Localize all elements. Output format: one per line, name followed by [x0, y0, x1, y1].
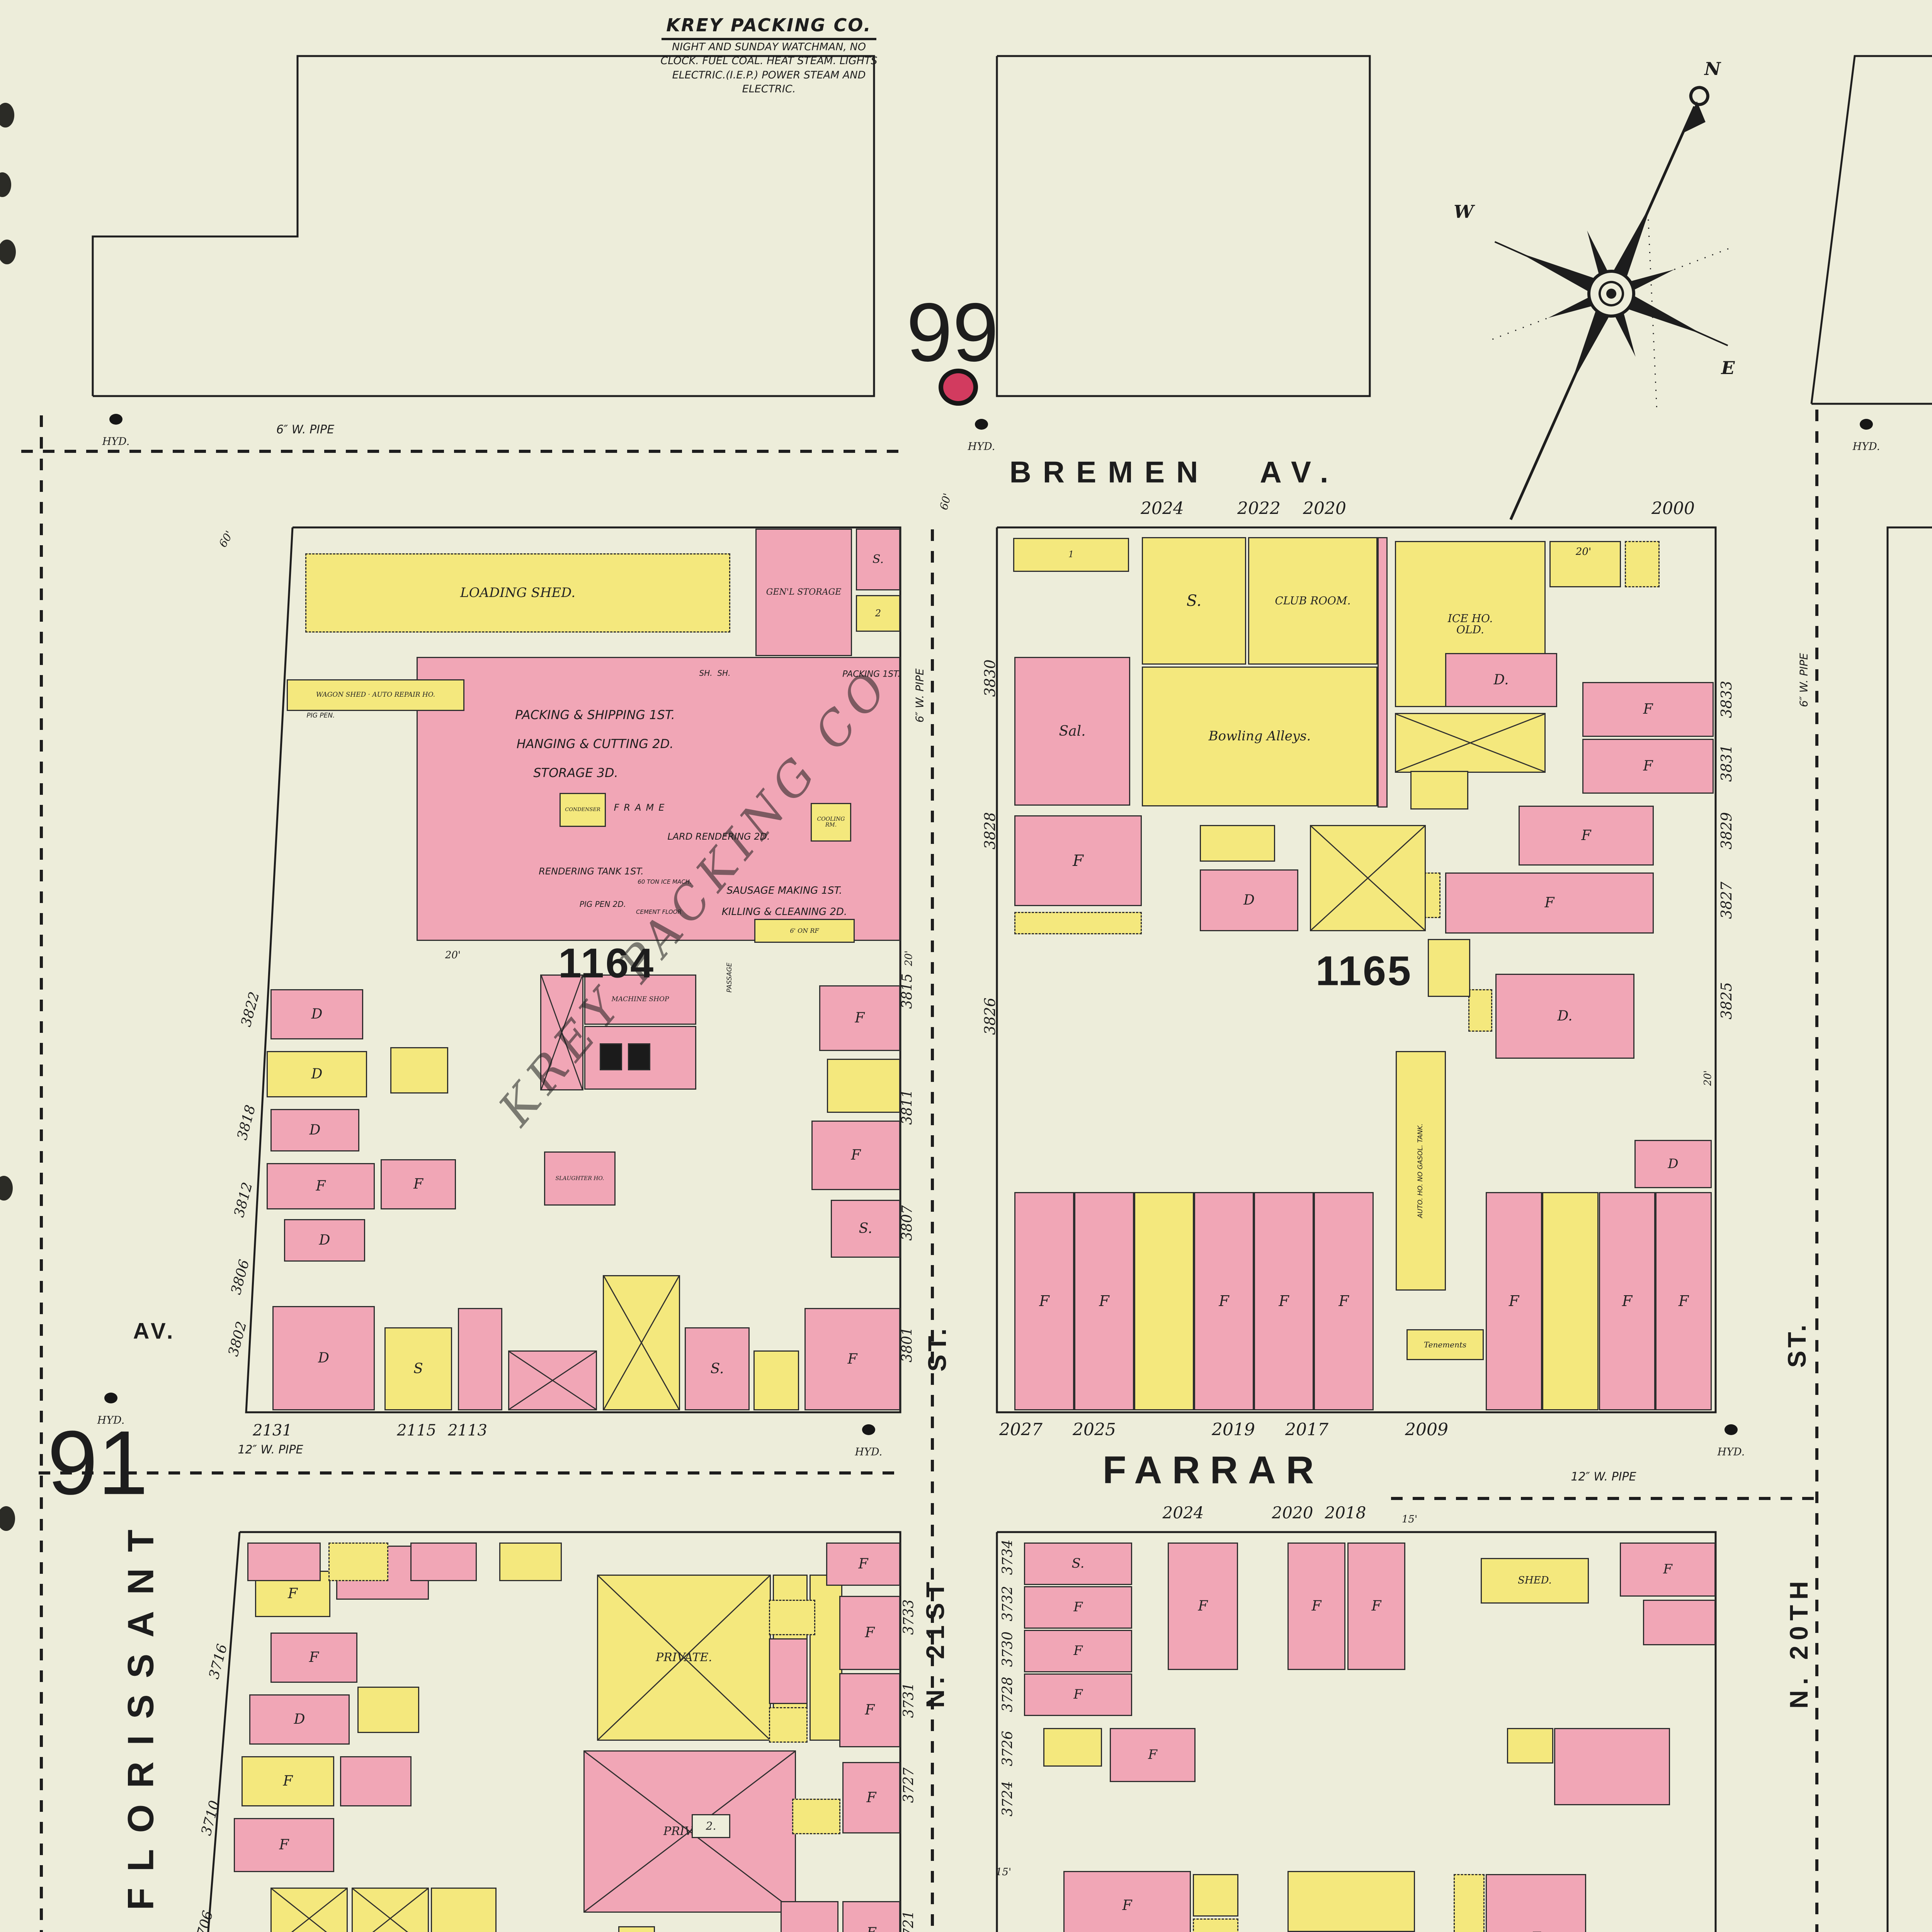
block-outline: [1811, 56, 1932, 404]
hydrant-label: HYD.: [1853, 441, 1880, 453]
building-label: F: [309, 1650, 319, 1665]
hydrant-icon: [862, 1424, 875, 1435]
map-label: 3811: [900, 1089, 915, 1125]
map-label: 20': [445, 949, 461, 961]
map-label: 3726: [1000, 1731, 1016, 1766]
adjacent-sheet-91: 91: [47, 1410, 148, 1515]
building-label: F: [848, 1352, 857, 1367]
building: SHED.: [1481, 1558, 1589, 1604]
building: F: [1582, 739, 1714, 794]
building: [1625, 541, 1660, 587]
compass-east-label: E: [1721, 357, 1735, 378]
building-label: 6' ON RF: [790, 928, 819, 934]
title-block: Krey Packing Co. NIGHT AND SUNDAY WATCHM…: [634, 15, 904, 97]
map-label: 20': [1702, 1070, 1714, 1086]
building-label: F: [865, 1626, 875, 1640]
building: [1310, 825, 1426, 931]
building: [628, 1043, 650, 1070]
building: GEN'L STORAGE: [755, 529, 852, 656]
map-label: 3827: [1718, 882, 1735, 919]
building: F: [1194, 1192, 1254, 1410]
map-label: 3721: [901, 1910, 917, 1932]
hydrant-icon: [104, 1393, 117, 1403]
building-label: F: [1338, 1294, 1349, 1309]
building: D: [1634, 1140, 1712, 1188]
building-label: F: [867, 1791, 876, 1805]
map-label: SH. SH.: [699, 668, 731, 678]
building: F: [819, 985, 900, 1051]
building: [1395, 713, 1546, 773]
building-label: F: [1148, 1748, 1157, 1762]
map-label: 3730: [1000, 1631, 1016, 1667]
map-label: KILLING & CLEANING 2D.: [722, 906, 847, 918]
building: F: [839, 1673, 900, 1747]
building: D: [270, 989, 363, 1039]
building: [1193, 1918, 1238, 1932]
building-label: GEN'L STORAGE: [766, 588, 841, 597]
building-label: D.: [1557, 1009, 1572, 1024]
building: F: [241, 1756, 334, 1806]
building-label: D: [318, 1351, 329, 1366]
map-label: PACKING & SHIPPING 1ST.: [515, 707, 675, 722]
title-note-1: NIGHT AND SUNDAY WATCHMAN, NO: [634, 40, 904, 54]
building: 6' ON RF: [754, 919, 855, 943]
building: F: [1599, 1192, 1655, 1410]
map-label: 2020: [1272, 1503, 1313, 1522]
building: F: [842, 1762, 900, 1833]
map-label: 3727: [901, 1767, 917, 1803]
map-label: 2115: [397, 1422, 436, 1439]
building: [753, 1350, 799, 1410]
building: [769, 1600, 815, 1635]
building-label: S: [413, 1362, 423, 1376]
building: F: [1314, 1192, 1374, 1410]
map-label: 15': [996, 1866, 1011, 1878]
building: [792, 1799, 840, 1834]
hydrant-icon: [1860, 419, 1873, 430]
building-label: S.: [872, 553, 884, 566]
building: [769, 1638, 808, 1704]
building-label: D: [319, 1233, 330, 1248]
building-label: F: [1663, 1563, 1672, 1577]
building-label: D: [1243, 893, 1255, 908]
building: PRIVATE: [583, 1750, 796, 1913]
map-label: 2025: [1073, 1420, 1116, 1440]
street-label-farrar: FARRAR: [1103, 1448, 1324, 1493]
building-label: F: [855, 1011, 865, 1026]
building-label: SLAUGHTER HO.: [555, 1176, 604, 1182]
crossed-building-mark: [272, 1889, 347, 1932]
map-label: 3728: [1000, 1677, 1016, 1712]
building: F: [1655, 1192, 1712, 1410]
building: [1043, 1728, 1102, 1767]
map-label: 2018: [1325, 1503, 1366, 1522]
map-label: 20': [903, 951, 915, 966]
building: F: [1582, 682, 1714, 737]
map-label: 2009: [1405, 1420, 1448, 1440]
building-label: CLUB ROOM.: [1275, 595, 1350, 606]
building-label: F: [1582, 828, 1591, 843]
building-label: F: [1073, 1600, 1083, 1614]
building-label: F: [851, 1148, 861, 1163]
building-label: F: [1622, 1294, 1632, 1309]
map-label: 2020: [1303, 499, 1346, 519]
hydrant-icon: [109, 414, 122, 425]
building: F: [1347, 1543, 1405, 1670]
crossed-building-mark: [604, 1276, 679, 1409]
building-label: F: [279, 1838, 289, 1852]
hydrant-icon: [1725, 1424, 1738, 1435]
building: PRIVATE.: [597, 1575, 771, 1741]
company-name: Krey Packing Co.: [662, 15, 876, 40]
building: [247, 1543, 321, 1581]
building-label: F: [1198, 1599, 1208, 1614]
building: [1454, 1874, 1485, 1932]
building-label: ICE HO. OLD.: [1448, 613, 1493, 636]
building: [508, 1350, 597, 1410]
building: S.: [685, 1327, 750, 1410]
building: [357, 1687, 419, 1733]
building: F: [1254, 1192, 1314, 1410]
map-label: 12″ W. PIPE: [1571, 1470, 1636, 1484]
building: F: [1486, 1192, 1542, 1410]
building-label: F: [1372, 1599, 1381, 1614]
map-label: 3826: [981, 998, 998, 1035]
map-label: 3801: [900, 1327, 915, 1362]
building: S.: [856, 529, 900, 590]
building: 1: [1013, 538, 1129, 572]
building: [1378, 537, 1388, 808]
building: 2: [856, 595, 900, 632]
building: F: [1168, 1543, 1238, 1670]
building: [1134, 1192, 1194, 1410]
building: [270, 1888, 348, 1932]
building: [1410, 771, 1468, 810]
map-label: 3833: [1718, 681, 1735, 718]
building: [410, 1543, 477, 1581]
map-label: 3815: [900, 973, 915, 1009]
building: D: [272, 1306, 375, 1410]
building: [603, 1275, 680, 1410]
building: [1014, 912, 1142, 934]
block-number-1166: 1166: [1304, 1923, 1401, 1932]
map-label: 3731: [901, 1682, 917, 1718]
block-outline: [93, 56, 874, 396]
building: [499, 1543, 562, 1581]
building: [328, 1543, 388, 1581]
building: D.: [1495, 974, 1634, 1059]
building: F: [1074, 1192, 1134, 1410]
sanborn-map-sheet: LOADING SHED.GEN'L STORAGES.2CONDENSERCO…: [0, 0, 1932, 1932]
building: F: [381, 1159, 456, 1209]
building-label: S.: [859, 1221, 872, 1236]
street-label-bremen: BREMENAV.: [1009, 455, 1340, 490]
building-label: F: [1279, 1294, 1289, 1309]
building-label: F: [859, 1557, 868, 1571]
building: F: [1110, 1728, 1196, 1782]
map-label: 2022: [1237, 499, 1281, 519]
building-label: LOADING SHED.: [460, 586, 575, 600]
map-label: 3831: [1718, 745, 1735, 782]
map-label: PIG PEN 2D.: [580, 900, 626, 909]
map-label: 3825: [1718, 982, 1735, 1020]
building-label: 2: [875, 609, 881, 618]
building-label: F: [413, 1177, 423, 1192]
map-label: PIG PEN.: [307, 712, 335, 719]
hydrant-label: HYD.: [102, 436, 130, 448]
building: 2.: [692, 1814, 730, 1838]
map-label: 3829: [1718, 812, 1735, 850]
building-label: D.: [1493, 673, 1509, 687]
street-label-n20th: N. 20TH: [1784, 1576, 1813, 1709]
map-label: 6″ W. PIPE: [913, 668, 926, 723]
map-label: HANGING & CUTTING 2D.: [517, 736, 674, 751]
building: D: [270, 1109, 359, 1151]
building: F: [1024, 1673, 1132, 1716]
building-label: D: [310, 1123, 321, 1138]
map-label: AUTO. HO. NO GASOL. TANK.: [1417, 1124, 1424, 1218]
map-label: 2027: [999, 1420, 1043, 1440]
map-label: 3830: [981, 660, 998, 697]
building-label: S.: [1072, 1557, 1085, 1571]
map-label: 3734: [1000, 1539, 1016, 1575]
compass-west-label: W: [1454, 201, 1474, 222]
building-label: D: [311, 1007, 323, 1022]
building: [1428, 939, 1470, 997]
building: S.: [831, 1200, 900, 1258]
map-label: 2017: [1285, 1420, 1328, 1440]
building-label: F: [1039, 1294, 1049, 1309]
street-label-n21st: N. 21ST: [920, 1577, 950, 1708]
map-label: 12″ W. PIPE: [238, 1443, 303, 1457]
building: F: [1014, 1192, 1074, 1410]
building-label: 1: [1068, 550, 1074, 559]
building: D: [284, 1219, 365, 1262]
crossed-building-mark: [585, 1752, 795, 1912]
map-label: 2024: [1163, 1503, 1204, 1522]
building: SLAUGHTER HO.: [544, 1151, 616, 1206]
street-label-florissant: FLORISSANT: [120, 1514, 162, 1910]
building: 1: [618, 1926, 655, 1932]
building: S: [384, 1327, 452, 1410]
building: CLUB ROOM.: [1248, 537, 1378, 665]
building: F: [804, 1308, 900, 1410]
building: Tenements: [1406, 1329, 1484, 1360]
street-label-florissant-av: AV.: [133, 1318, 176, 1344]
building: F: [811, 1121, 900, 1190]
building-label: F: [1643, 702, 1653, 717]
building: [1200, 825, 1275, 862]
building: COOLING RM.: [811, 803, 851, 842]
building-label: F: [1073, 1688, 1083, 1702]
building: [1287, 1871, 1415, 1932]
building-label: F: [1073, 1644, 1083, 1658]
building-label: Tenements: [1424, 1341, 1466, 1349]
block-number-1163: 1163: [500, 1923, 597, 1932]
hydrant-icon: [975, 419, 988, 430]
map-label: 3828: [981, 812, 998, 850]
building-label: F: [865, 1703, 875, 1718]
map-label: 15': [1402, 1514, 1417, 1525]
street-bremen-name: BREMEN: [1009, 455, 1209, 489]
building: [340, 1756, 412, 1806]
building-label: F: [288, 1587, 298, 1601]
street-label-n20th-st: ST.: [1782, 1321, 1811, 1367]
building: F: [826, 1543, 900, 1586]
crossed-building-mark: [1396, 714, 1544, 772]
building: F: [1519, 806, 1654, 866]
building: F: [1287, 1543, 1345, 1670]
map-label: 2024: [1141, 499, 1184, 519]
building: F: [839, 1596, 900, 1670]
building: D.: [1445, 653, 1557, 707]
map-label: 20': [1576, 546, 1591, 558]
map-label: 2000: [1651, 499, 1695, 519]
block-number-1165: 1165: [1316, 947, 1412, 995]
building-label: 2.: [706, 1820, 716, 1832]
building: [390, 1047, 448, 1094]
building-label: F: [1509, 1294, 1519, 1309]
building-label: F: [1219, 1294, 1229, 1309]
building: [1643, 1600, 1716, 1645]
map-label: STORAGE 3D.: [533, 765, 618, 780]
building: [1554, 1728, 1670, 1805]
building: F: [1014, 815, 1142, 906]
hydrant-label: HYD.: [968, 441, 995, 453]
building: F: [1024, 1630, 1132, 1672]
title-note-4: ELECTRIC.: [634, 82, 904, 96]
building-label: F: [1545, 896, 1554, 910]
building: D: [249, 1694, 350, 1745]
map-label: 6″ W. PIPE: [276, 423, 334, 437]
building-label: Sal.: [1059, 724, 1085, 739]
building-label: WAGON SHED · AUTO REPAIR HO.: [316, 692, 435, 699]
block-outline: [1888, 527, 1932, 1932]
building: F: [1486, 1874, 1586, 1932]
street-label-n21st-st: ST.: [922, 1325, 952, 1371]
map-label: 3733: [901, 1599, 917, 1635]
building: [352, 1888, 429, 1932]
building-label: F: [1099, 1294, 1109, 1309]
building-label: CONDENSER: [565, 807, 600, 813]
building-label: D: [311, 1067, 323, 1082]
building: F: [1024, 1586, 1132, 1629]
building-label: F: [1122, 1898, 1132, 1913]
map-label: 6″ W. PIPE: [1798, 653, 1810, 707]
map-label: 2131: [253, 1422, 292, 1439]
building: [781, 1901, 838, 1932]
building: [458, 1308, 502, 1410]
building: [827, 1059, 900, 1113]
crossed-building-mark: [1311, 826, 1425, 930]
hydrant-label: HYD.: [855, 1446, 883, 1458]
map-label: PASSAGE: [726, 963, 733, 993]
block-number-1164: 1164: [558, 939, 655, 987]
building: F: [267, 1163, 375, 1209]
map-label: 3724: [1000, 1781, 1016, 1816]
building: Sal.: [1014, 657, 1130, 806]
building-label: SHED.: [1518, 1575, 1552, 1586]
building-label: F: [1679, 1294, 1689, 1309]
building: S.: [1142, 537, 1246, 665]
building: CONDENSER: [560, 793, 606, 827]
building: [1507, 1728, 1553, 1764]
building-label: F: [1312, 1599, 1321, 1614]
building-label: Bowling Alleys.: [1209, 730, 1311, 743]
map-label: 2019: [1212, 1420, 1255, 1440]
map-label: FRAME: [614, 802, 669, 813]
building: F: [842, 1901, 900, 1932]
building: Bowling Alleys.: [1142, 667, 1378, 806]
building: F: [1445, 872, 1654, 934]
title-note-2: CLOCK. FUEL COAL. HEAT STEAM. LIGHTS: [634, 54, 904, 68]
adjacent-sheet-99: 99: [906, 284, 998, 380]
building: F: [1620, 1543, 1716, 1597]
compass-north-label: N: [1704, 58, 1721, 79]
map-label: 3807: [900, 1205, 915, 1241]
building: [431, 1888, 497, 1932]
block-outline: [997, 56, 1370, 396]
building-label: F: [283, 1774, 293, 1789]
building-label: F: [1531, 1930, 1541, 1932]
building: [1193, 1874, 1238, 1917]
building-label: F: [1073, 853, 1083, 869]
building-label: F: [316, 1179, 326, 1194]
building-label: COOLING RM.: [812, 816, 850, 828]
building-label: D: [294, 1712, 305, 1727]
compass-rose: [1394, 36, 1819, 571]
building: WAGON SHED · AUTO REPAIR HO.: [287, 679, 464, 711]
building: D: [267, 1051, 367, 1097]
building-label: D: [1668, 1157, 1678, 1171]
building: [1468, 989, 1492, 1032]
map-label: 2113: [448, 1422, 487, 1439]
building: LOADING SHED.: [305, 553, 730, 633]
building-label: F: [1643, 759, 1653, 774]
hydrant-label: HYD.: [1718, 1446, 1745, 1458]
map-label: RENDERING TANK 1ST.: [539, 866, 644, 877]
building-label: S.: [711, 1362, 724, 1376]
crossed-building-mark: [509, 1352, 596, 1409]
map-label: 3732: [1000, 1586, 1016, 1621]
building: [769, 1707, 808, 1743]
building-label: F: [867, 1926, 876, 1932]
building: D: [1200, 869, 1298, 931]
building: F: [234, 1818, 334, 1872]
building: F: [1063, 1871, 1191, 1932]
building: S.: [1024, 1543, 1132, 1585]
crossed-building-mark: [353, 1889, 428, 1932]
building-label: S.: [1187, 593, 1202, 609]
title-note-3: ELECTRIC.(I.E.P.) POWER STEAM AND: [634, 68, 904, 82]
map-label: SAUSAGE MAKING 1ST.: [726, 885, 842, 896]
crossed-building-mark: [598, 1576, 770, 1740]
building: [1542, 1192, 1599, 1410]
street-bremen-suffix: AV.: [1260, 455, 1340, 489]
building: F: [270, 1633, 357, 1683]
